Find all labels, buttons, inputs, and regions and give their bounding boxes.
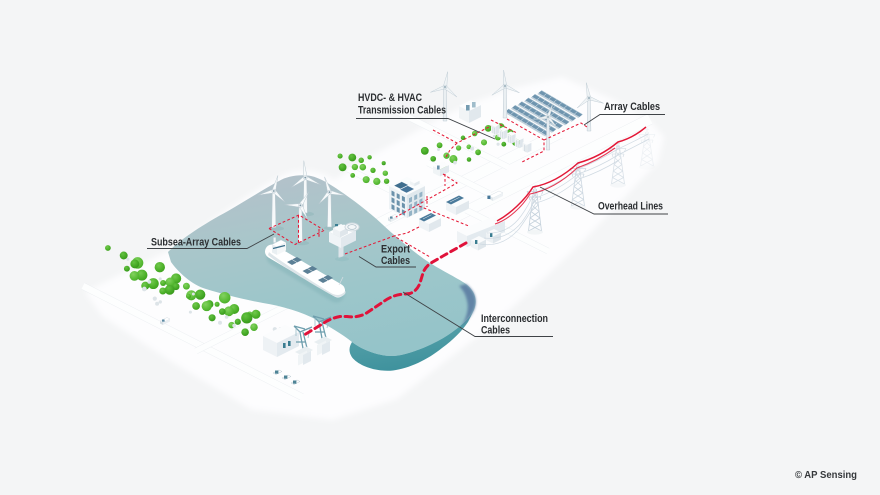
- svg-text:Cables: Cables: [481, 325, 510, 337]
- svg-text:HVDC- & HVAC: HVDC- & HVAC: [358, 92, 422, 104]
- svg-text:© AP Sensing: © AP Sensing: [795, 469, 857, 481]
- svg-text:Interconnection: Interconnection: [481, 313, 548, 325]
- svg-text:Overhead Lines: Overhead Lines: [598, 201, 663, 213]
- svg-text:Transmission Cables: Transmission Cables: [358, 105, 446, 117]
- svg-text:Export: Export: [381, 244, 410, 256]
- svg-text:Array Cables: Array Cables: [604, 101, 660, 113]
- svg-text:Cables: Cables: [381, 255, 410, 267]
- svg-text:Subsea-Array Cables: Subsea-Array Cables: [151, 237, 241, 249]
